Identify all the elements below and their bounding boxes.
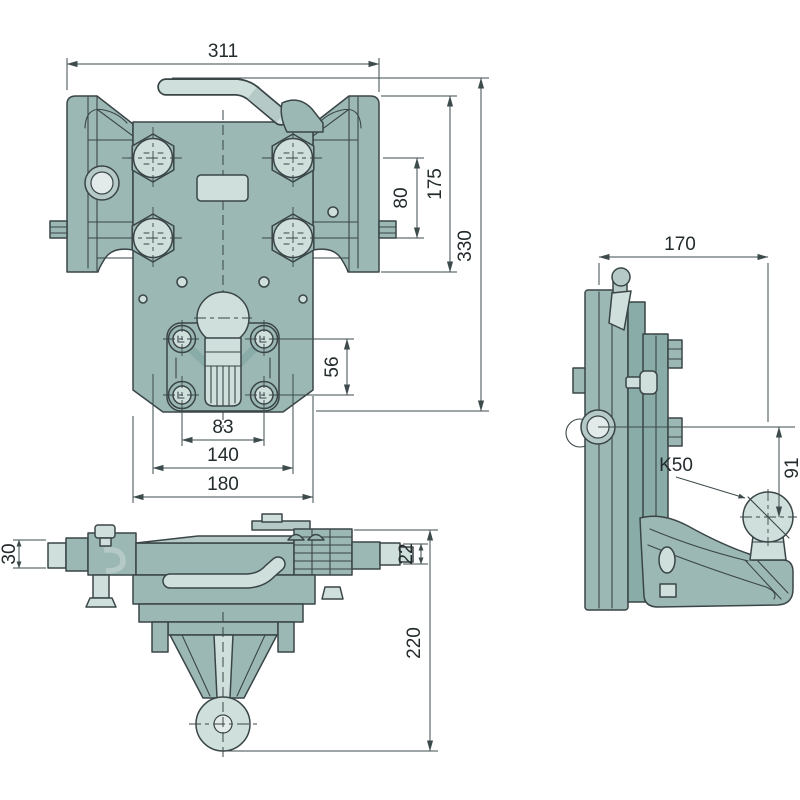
plate-hole	[299, 295, 307, 303]
drawing-canvas: 311 330 175 80 56 83	[0, 0, 800, 800]
dim-label-330: 330	[455, 230, 476, 262]
latch-plate-light	[262, 514, 282, 522]
bottom-view: 30 22 220	[0, 514, 438, 762]
right-foot	[322, 587, 343, 599]
dim-label-22: 22	[396, 543, 417, 564]
label-K50: K50	[659, 455, 693, 476]
dim-left-pin: 30	[0, 540, 46, 568]
dim-label-180: 180	[207, 474, 239, 495]
dim-label-30: 30	[0, 543, 20, 564]
dim-label-80: 80	[391, 187, 412, 208]
dim-flange-height: 175	[381, 96, 457, 272]
side-view: 170 91 K50	[566, 234, 800, 610]
dim-right-pin: 22	[396, 543, 428, 564]
front-view: 311 330 175 80 56 83	[50, 41, 489, 503]
dim-label-220: 220	[404, 627, 425, 659]
ball-type-callout: K50	[659, 455, 745, 498]
leader-line	[676, 477, 745, 498]
right-pin-collar	[352, 542, 380, 569]
right-flange	[313, 96, 396, 272]
handle-cowl	[281, 100, 323, 132]
flange-hole	[328, 207, 338, 217]
dim-label-83: 83	[212, 417, 233, 438]
bracket-slot	[659, 547, 675, 573]
dim-label-56: 56	[322, 356, 343, 377]
bar-right-stack	[288, 529, 352, 575]
plate-hole	[177, 277, 187, 287]
dim-label-140: 140	[207, 445, 239, 466]
technical-drawing-page: 311 330 175 80 56 83	[0, 0, 800, 800]
plate-tier2	[139, 604, 303, 622]
side-bolt	[668, 418, 682, 446]
tow-ball-side	[740, 489, 797, 560]
left-pin-tip	[48, 543, 66, 568]
plate-hole	[259, 277, 269, 287]
funnel-rib-right	[278, 622, 294, 652]
dim-label-175: 175	[425, 168, 446, 200]
id-plate	[197, 175, 248, 201]
funnel-rib-left	[152, 622, 168, 652]
plate-hole	[139, 295, 147, 303]
bracket-hole	[660, 584, 676, 597]
dim-label-170: 170	[664, 234, 696, 255]
dim-label-91: 91	[782, 457, 800, 478]
dim-label-311: 311	[208, 41, 238, 62]
left-flange	[50, 96, 133, 272]
side-bolt	[668, 340, 682, 368]
upright-plate	[585, 290, 628, 610]
left-pin-collar	[66, 538, 88, 571]
